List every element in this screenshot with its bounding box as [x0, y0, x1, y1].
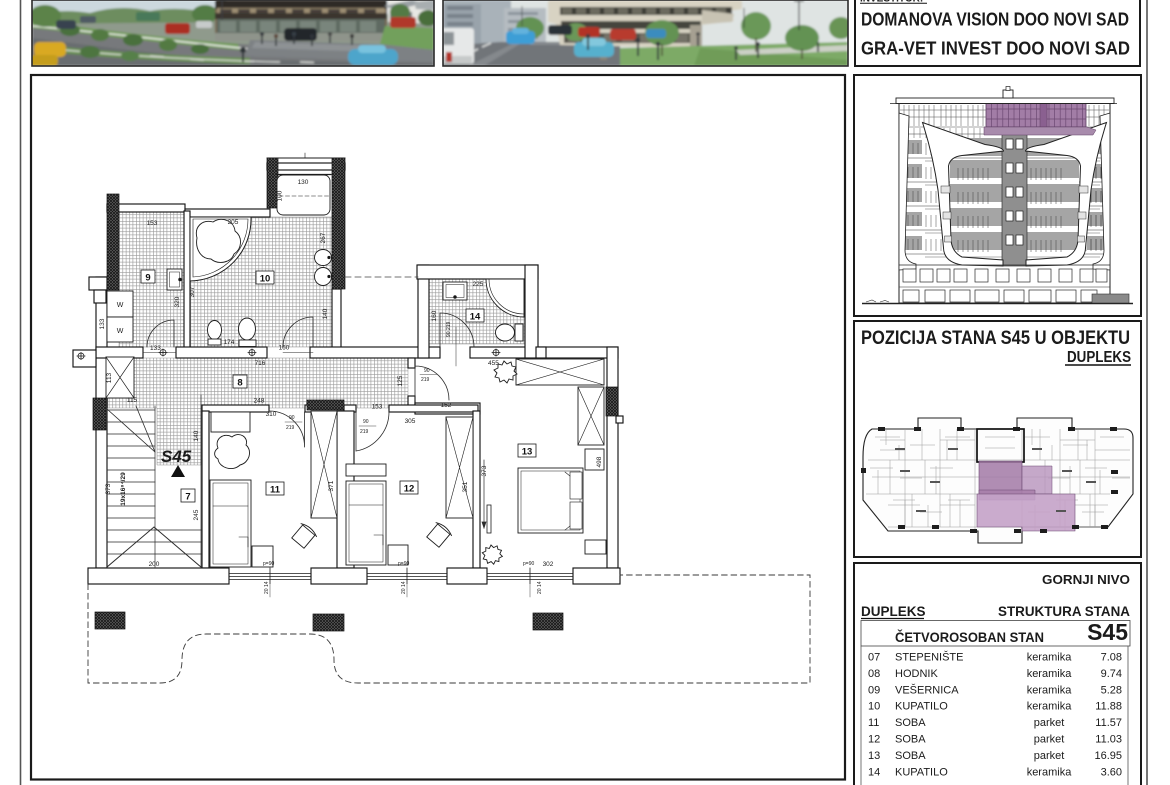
svg-text:p=90: p=90: [263, 561, 274, 567]
svg-text:13: 13: [868, 750, 880, 762]
svg-text:7.08: 7.08: [1101, 652, 1122, 664]
svg-text:310: 310: [266, 411, 277, 418]
svg-text:153: 153: [147, 220, 158, 227]
svg-text:SOBA: SOBA: [895, 717, 926, 729]
svg-text:SOBA: SOBA: [895, 750, 926, 762]
svg-text:20 14: 20 14: [401, 581, 407, 594]
svg-text:keramika: keramika: [1027, 701, 1073, 713]
svg-text:5.28: 5.28: [1101, 684, 1122, 696]
svg-text:20 14: 20 14: [264, 581, 270, 594]
svg-text:DUPLEKS: DUPLEKS: [861, 604, 926, 619]
svg-text:498: 498: [596, 456, 603, 467]
svg-text:90: 90: [363, 419, 369, 425]
svg-text:07: 07: [868, 652, 880, 664]
svg-text:GRA-VET INVEST DOO NOVI SAD: GRA-VET INVEST DOO NOVI SAD: [861, 38, 1130, 59]
svg-text:455: 455: [488, 360, 499, 367]
svg-text:130: 130: [298, 179, 309, 186]
svg-text:100: 100: [277, 190, 284, 201]
svg-text:205: 205: [228, 219, 239, 226]
svg-text:10: 10: [260, 274, 271, 285]
svg-text:W: W: [117, 328, 124, 335]
svg-text:DUPLEKS: DUPLEKS: [1067, 349, 1131, 366]
svg-text:S45: S45: [161, 447, 192, 466]
svg-text:302: 302: [543, 561, 554, 568]
svg-text:11.88: 11.88: [1095, 701, 1122, 713]
svg-text:12: 12: [868, 734, 880, 746]
svg-text:keramika: keramika: [1027, 684, 1073, 696]
svg-text:14: 14: [470, 312, 481, 323]
svg-text:320: 320: [174, 296, 181, 307]
svg-text:20 14: 20 14: [537, 581, 543, 594]
svg-text:153: 153: [372, 404, 383, 411]
svg-text:HODNIK: HODNIK: [895, 668, 938, 680]
svg-text:12: 12: [404, 484, 415, 495]
svg-text:152: 152: [441, 402, 452, 409]
svg-text:90: 90: [424, 368, 430, 374]
svg-text:90: 90: [289, 415, 295, 421]
svg-text:8: 8: [237, 378, 242, 389]
svg-text:351: 351: [462, 481, 469, 492]
svg-text:keramika: keramika: [1027, 668, 1073, 680]
svg-text:248: 248: [254, 398, 265, 405]
svg-text:POZICIJA STANA S45 U OBJEKTU: POZICIJA STANA S45 U OBJEKTU: [861, 328, 1130, 349]
svg-text:S45: S45: [1087, 619, 1128, 645]
svg-text:113: 113: [106, 372, 113, 383]
svg-text:parket: parket: [1034, 717, 1065, 729]
svg-text:KUPATILO: KUPATILO: [895, 766, 948, 778]
svg-text:7: 7: [185, 492, 190, 503]
svg-text:219: 219: [421, 377, 430, 383]
svg-text:GORNJI NIVO: GORNJI NIVO: [1042, 572, 1130, 587]
svg-text:90 219: 90 219: [446, 321, 452, 337]
svg-text:KUPATILO: KUPATILO: [895, 701, 948, 713]
svg-text:11.03: 11.03: [1095, 734, 1122, 746]
svg-text:307: 307: [189, 286, 196, 297]
svg-text:160: 160: [279, 345, 290, 352]
svg-text:160: 160: [431, 310, 438, 321]
svg-text:9: 9: [145, 273, 150, 284]
svg-text:125: 125: [397, 375, 404, 386]
svg-text:140: 140: [193, 430, 200, 441]
svg-text:STRUKTURA STANA: STRUKTURA STANA: [998, 604, 1130, 619]
svg-text:p=90: p=90: [398, 561, 409, 567]
svg-text:245: 245: [193, 509, 200, 520]
svg-text:14: 14: [868, 766, 880, 778]
svg-text:716: 716: [255, 360, 266, 367]
svg-text:10: 10: [868, 701, 880, 713]
svg-text:9.74: 9.74: [1101, 668, 1122, 680]
svg-text:200: 200: [149, 561, 160, 568]
svg-text:keramika: keramika: [1027, 652, 1073, 664]
svg-text:373: 373: [481, 465, 488, 476]
svg-text:140: 140: [322, 308, 329, 319]
svg-text:INVESTITOR:: INVESTITOR:: [860, 0, 923, 5]
svg-text:11: 11: [868, 717, 879, 729]
svg-text:parket: parket: [1034, 750, 1065, 762]
svg-text:DOMANOVA VISION DOO NOVI SAD: DOMANOVA VISION DOO NOVI SAD: [861, 9, 1129, 30]
svg-text:W: W: [117, 302, 124, 309]
svg-text:STEPENIŠTE: STEPENIŠTE: [895, 651, 963, 664]
svg-text:13: 13: [522, 447, 533, 458]
svg-text:219: 219: [286, 425, 295, 431]
svg-text:19x16⁸⁴/29: 19x16⁸⁴/29: [120, 472, 127, 506]
svg-text:16.95: 16.95: [1094, 750, 1122, 762]
svg-text:ČETVOROSOBAN STAN: ČETVOROSOBAN STAN: [895, 630, 1044, 645]
svg-text:267: 267: [320, 232, 327, 243]
svg-text:219: 219: [360, 429, 369, 435]
svg-text:keramika: keramika: [1027, 766, 1073, 778]
svg-text:11: 11: [270, 485, 281, 496]
svg-text:11.57: 11.57: [1095, 717, 1122, 729]
svg-text:174: 174: [224, 339, 235, 346]
svg-text:3.60: 3.60: [1101, 766, 1122, 778]
svg-text:09: 09: [868, 684, 880, 696]
svg-text:133: 133: [99, 318, 106, 329]
svg-text:133: 133: [150, 345, 161, 352]
svg-text:115: 115: [127, 397, 138, 404]
svg-text:p=90: p=90: [523, 561, 534, 567]
svg-text:373: 373: [105, 483, 112, 494]
svg-text:08: 08: [868, 668, 880, 680]
svg-text:305: 305: [405, 418, 416, 425]
svg-text:VEŠERNICA: VEŠERNICA: [895, 683, 959, 696]
svg-text:SOBA: SOBA: [895, 734, 926, 746]
svg-text:371: 371: [328, 480, 335, 491]
svg-text:225: 225: [473, 281, 484, 288]
svg-text:parket: parket: [1034, 734, 1065, 746]
